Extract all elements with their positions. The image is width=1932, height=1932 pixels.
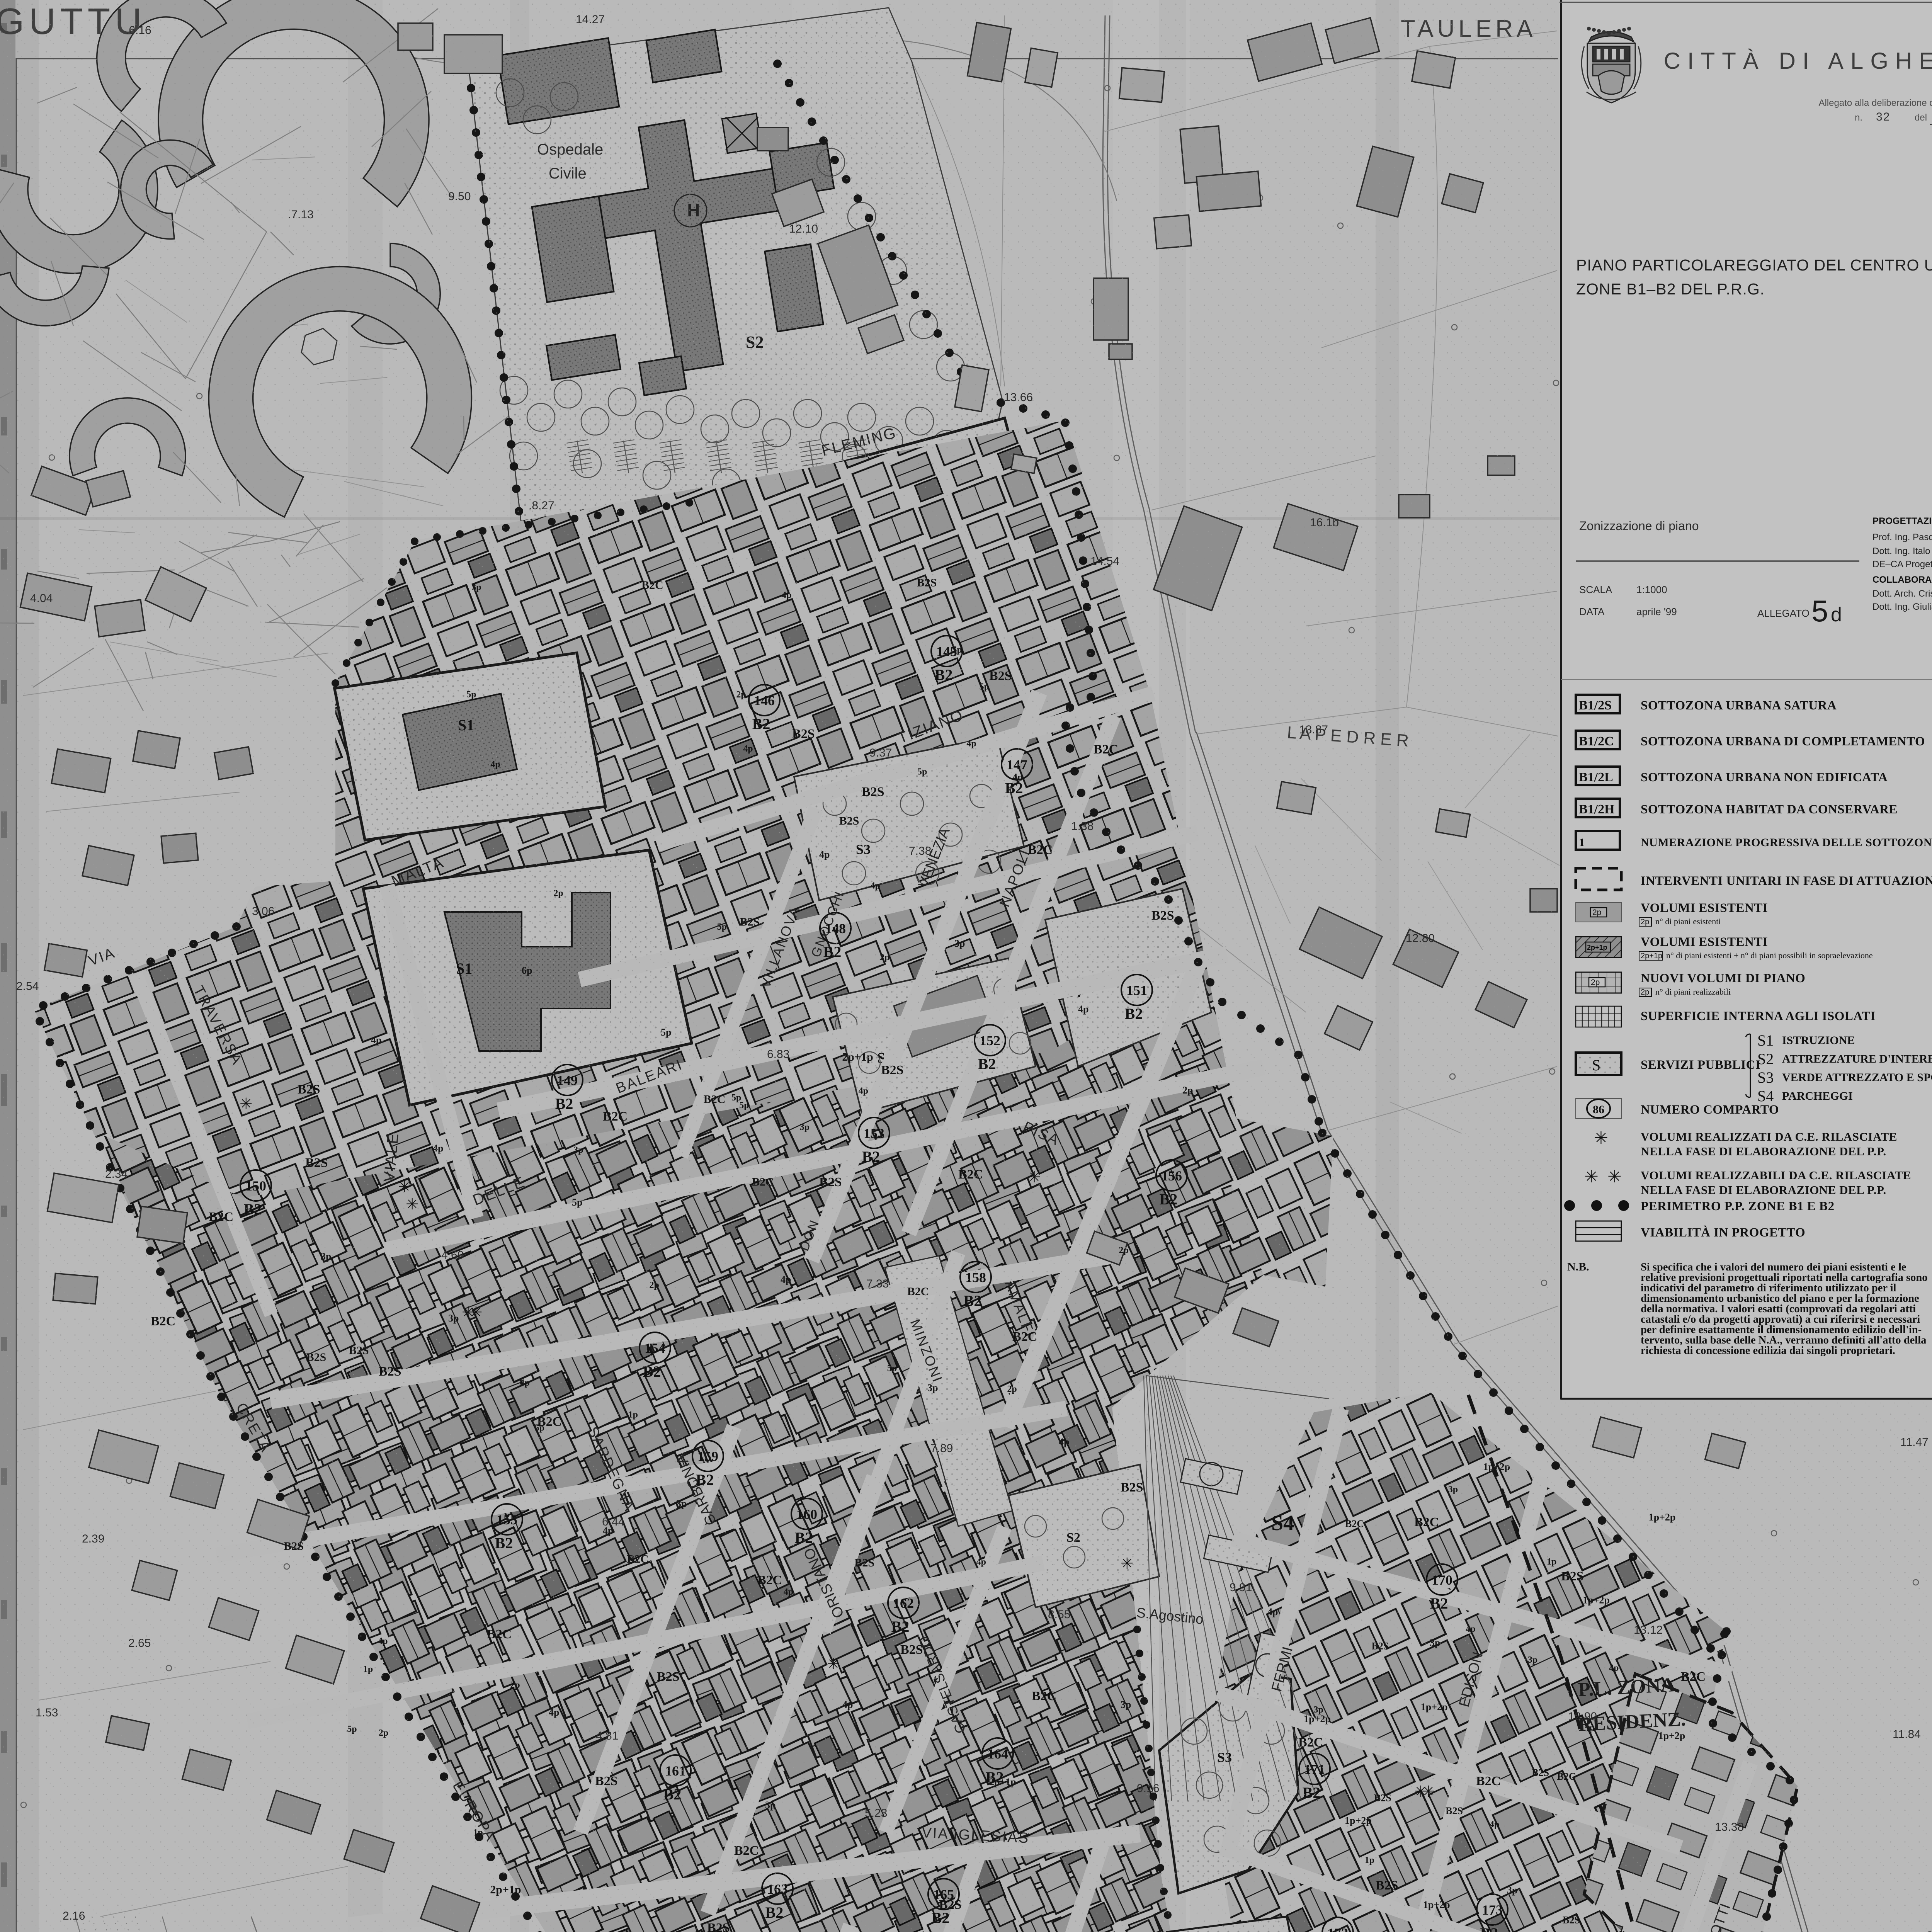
svg-text:Dott. Arch. Cristiana Cherc: Dott. Arch. Cristiana Cherchi [1872,588,1932,599]
svg-text:PROGETTAZIONE: PROGETTAZIONE [1872,516,1932,526]
svg-text:2p: 2p [1641,988,1649,997]
svg-text:SOTTOZONA URBANA NON EDIFIC: SOTTOZONA URBANA NON EDIFICATA [1641,770,1888,784]
svg-text:1:1000: 1:1000 [1636,584,1667,595]
svg-text:n° di piani esistenti: n° di piani esistenti [1655,917,1721,926]
svg-text:ZONE B1–B2 DEL P.R.G.: ZONE B1–B2 DEL P.R.G. [1576,280,1765,298]
svg-text:B1/2L: B1/2L [1579,770,1613,784]
svg-text:S4: S4 [1757,1087,1774,1105]
svg-text:2p: 2p [1591,978,1600,987]
svg-text:ALLEGATO: ALLEGATO [1757,607,1810,619]
svg-text:SUPERFICIE INTERNA AGLI ISO: SUPERFICIE INTERNA AGLI ISOLATI [1641,1009,1876,1023]
svg-text:SERVIZI PUBBLICI: SERVIZI PUBBLICI [1641,1058,1760,1072]
svg-text:NUOVI VOLUMI DI PIANO: NUOVI VOLUMI DI PIANO [1641,971,1805,985]
svg-text:n° di piani esistenti + n: n° di piani esistenti + n° di piani poss… [1666,951,1873,960]
svg-text:richiesta di concessione ed: richiesta di concessione edilizia dai si… [1641,1345,1895,1357]
svg-text:VOLUMI ESISTENTI: VOLUMI ESISTENTI [1641,935,1768,949]
svg-text:NELLA FASE DI ELABORAZIONE: NELLA FASE DI ELABORAZIONE DEL P.P. [1641,1145,1886,1158]
svg-text:N.B.: N.B. [1567,1260,1589,1273]
svg-text:SOTTOZONA URBANA SATURA: SOTTOZONA URBANA SATURA [1641,699,1837,713]
svg-text:B1/2H: B1/2H [1579,802,1615,816]
svg-text:86: 86 [1593,1103,1604,1116]
svg-text:ATTREZZATURE D'INTERESSE COM: ATTREZZATURE D'INTERESSE COMUNE [1782,1053,1932,1065]
svg-text:DE–CA Progetti: DE–CA Progetti [1872,559,1932,570]
svg-text:VIABILITÀ IN PROGETTO: VIABILITÀ IN PROGETTO [1641,1225,1805,1240]
svg-text:B1/2S: B1/2S [1579,698,1612,713]
svg-text:B1/2C: B1/2C [1579,734,1614,748]
svg-text:NUMERAZIONE PROGRESSIVA DELL: NUMERAZIONE PROGRESSIVA DELLE SOTTOZONE … [1641,836,1932,849]
svg-text:Dott. Ing. Giuliana Deriu: Dott. Ing. Giuliana Deriu [1872,602,1932,612]
svg-text:VOLUMI ESISTENTI: VOLUMI ESISTENTI [1641,901,1768,915]
svg-text:2p: 2p [1641,918,1649,926]
svg-text:VERDE ATTREZZATO E SPORT: VERDE ATTREZZATO E SPORT [1782,1071,1932,1084]
svg-text:Zonizzazione di piano: Zonizzazione di piano [1579,519,1699,533]
svg-text:DATA: DATA [1579,606,1605,617]
svg-text:Prof. Ing. Pasquale Mistret: Prof. Ing. Pasquale Mistretta [1872,532,1932,543]
svg-text:PIANO PARTICOLAREGGIATO DEL: PIANO PARTICOLAREGGIATO DEL CENTRO URBAN… [1576,256,1932,274]
svg-text:n.: n. [1855,112,1862,123]
svg-text:VOLUMI REALIZZATI DA C.E.: VOLUMI REALIZZATI DA C.E. RILASCIATE [1641,1130,1897,1143]
svg-text:S2: S2 [1757,1050,1774,1068]
svg-text:✳: ✳ [1584,1167,1599,1186]
svg-text:S: S [1592,1056,1600,1074]
svg-text:n° di piani realizzabili: n° di piani realizzabili [1655,987,1731,997]
svg-text:PARCHEGGI: PARCHEGGI [1782,1090,1853,1102]
svg-text:ISTRUZIONE: ISTRUZIONE [1782,1034,1855,1047]
svg-text:2p+1p: 2p+1p [1587,944,1607,951]
svg-text:1: 1 [1579,836,1585,849]
svg-text:d: d [1831,604,1842,626]
svg-text:2p+1p: 2p+1p [1641,952,1662,960]
svg-text:✳: ✳ [1594,1129,1608,1148]
svg-text:NELLA FASE DI ELABORAZIONE: NELLA FASE DI ELABORAZIONE DEL P.P. [1641,1183,1886,1197]
svg-text:SOTTOZONA HABITAT DA CONSER: SOTTOZONA HABITAT DA CONSERVARE [1641,803,1898,816]
svg-text:5: 5 [1811,594,1828,628]
svg-text:✳: ✳ [1607,1167,1622,1186]
svg-text:PERIMETRO P.P. ZONE B1 E: PERIMETRO P.P. ZONE B1 E B2 [1641,1199,1835,1213]
svg-text:INTERVENTI UNITARI IN FASE: INTERVENTI UNITARI IN FASE DI ATTUAZIONE [1641,874,1932,888]
svg-text:S3: S3 [1757,1069,1774,1086]
svg-text:del: del [1915,112,1927,123]
svg-text:32: 32 [1876,111,1890,123]
svg-text:COLLABORAZIONE: COLLABORAZIONE [1872,575,1932,585]
svg-text:S1: S1 [1757,1032,1774,1049]
svg-text:SOTTOZONA URBANA DI COMPLET: SOTTOZONA URBANA DI COMPLETAMENTO [1641,735,1925,748]
svg-text:CITTÀ DI ALGHERO: CITTÀ DI ALGHERO [1664,48,1932,74]
svg-text:SCALA: SCALA [1579,584,1612,595]
svg-text:Allegato alla deliberazione de: Allegato alla deliberazione del C.C. [1818,98,1932,108]
svg-text:2p: 2p [1592,908,1601,917]
svg-text:aprile '99: aprile '99 [1636,606,1677,617]
svg-text:VOLUMI REALIZZABILI DA C.E.: VOLUMI REALIZZABILI DA C.E. RILASCIATE [1641,1168,1911,1182]
svg-text:NUMERO COMPARTO: NUMERO COMPARTO [1641,1103,1779,1117]
svg-text:Dott. Ing. Italo Meloni: Dott. Ing. Italo Meloni [1872,546,1932,556]
